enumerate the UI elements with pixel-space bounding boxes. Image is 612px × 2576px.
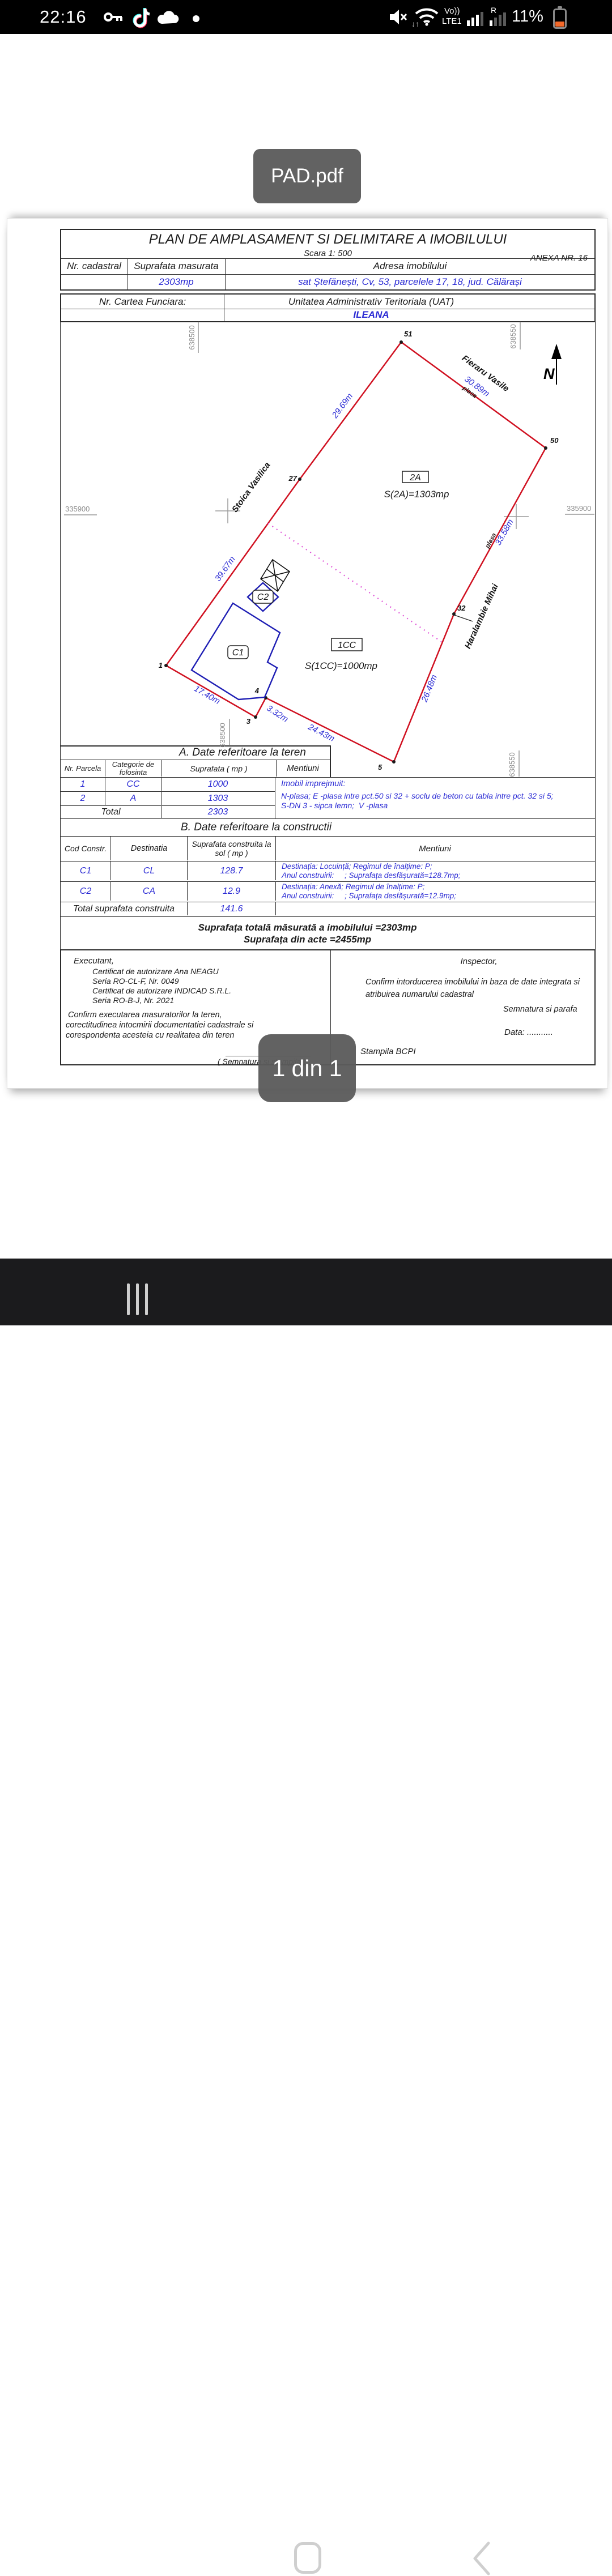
parcel-2a-code: 2A	[409, 473, 421, 483]
b-r1-men: Destinația: Locuință; Regimul de înalțim…	[275, 861, 594, 880]
table-b-total-row: Total suprafata construita 141.6	[60, 902, 596, 917]
a-r1-cat: CC	[105, 778, 161, 791]
a-men-line2: N-plasa; E -plasa intre pct.50 si 32 + s…	[281, 791, 554, 800]
grid-label-top-left: 638500	[188, 325, 196, 349]
cloud-icon	[156, 10, 181, 25]
b-r1-dest: CL	[110, 861, 187, 880]
val-nr-cadastral	[61, 274, 127, 289]
dim-39-67: 39.67m	[213, 555, 237, 583]
val-adresa: sat Ștefănești, Cv, 53, parcelele 17, 18…	[225, 274, 594, 289]
b-r2-dest: CA	[110, 882, 187, 901]
executant-cert-4: Seria RO-B-J, Nr. 2021	[92, 996, 174, 1005]
parcel-boundary	[166, 342, 546, 762]
signal-bars-icon	[467, 10, 486, 26]
grid-label-bottom-left: 638500	[218, 723, 227, 747]
table-a-total-row: Total 2303	[60, 806, 275, 819]
a-total-value: 2303	[161, 806, 274, 818]
executant-cert-1: Certificat de autorizare Ana NEAGU	[92, 967, 219, 976]
val-uat: ILEANA	[224, 309, 518, 321]
b-r1-men-1: Destinația: Locuință; Regimul de înalțim…	[282, 862, 432, 871]
dim-3-32: 3.32m	[265, 703, 290, 724]
a-hdr-cat: Categorie de folosinta	[105, 760, 161, 777]
inspector-label: Inspector,	[405, 956, 552, 966]
home-button[interactable]	[294, 2542, 321, 2574]
hdr-nr-cadastral: Nr. cadastral	[61, 258, 127, 274]
a-r2-sup: 1303	[161, 792, 274, 805]
total-measured: Suprafața totală măsurată a imobilului =…	[7, 922, 607, 933]
inspector-date: Data: ...........	[504, 1027, 553, 1037]
battery-percent: 11%	[512, 7, 543, 26]
table-a-row-2: 2 A 1303	[60, 792, 275, 806]
section-a-title: A. Date referitoare la teren	[115, 747, 370, 759]
a-r1-sup: 1000	[161, 778, 274, 791]
a-r2-nr: 2	[61, 792, 105, 805]
inspector-confirm-2: atribuirea numarului cadastral	[365, 990, 474, 999]
b-hdr-cod: Cod Constr.	[61, 837, 110, 860]
shed-x-structure	[261, 560, 290, 591]
cf-table: Nr. Cartea Funciara: Unitatea Administra…	[60, 293, 596, 322]
a-r2-cat: A	[105, 792, 161, 805]
a-total-label: Total	[61, 806, 161, 818]
inspector-confirm-1: Confirm intorducerea imobilului in baza …	[365, 978, 580, 987]
site-plan-map: 638500 638550 638500 638550 335900 33590…	[60, 322, 596, 778]
table-b-row-c2: C2 CA 12.9 Destinația: Anexă; Regimul de…	[60, 882, 596, 902]
a-men-line3: S-DN 3 - sipca lemn; V -plasa	[281, 801, 388, 810]
volte-label: Vo))	[444, 7, 460, 16]
inspector-stamp: Stampila BCPI	[360, 1047, 416, 1056]
b-r2-men-1: Destinația: Anexă; Regimul de înalțime: …	[282, 882, 424, 891]
north-letter: N	[543, 365, 555, 382]
clock: 22:16	[40, 7, 87, 27]
executant-confirm-3: corespondenta acesteia cu realitatea din…	[66, 1031, 234, 1040]
signal-bars2-icon	[490, 12, 509, 26]
a-hdr-sup: Suprafata ( mp )	[161, 760, 276, 777]
executant-cert-3: Certificat de autorizare INDICAD S.R.L.	[92, 986, 231, 995]
b-hdr-men: Mentiuni	[275, 837, 594, 860]
b-r1-men-2: Anul construirii: ; Suprafața desfășurat…	[282, 871, 461, 880]
a-men-line1: Imobil imprejmuit:	[281, 779, 346, 788]
b-r2-sup: 12.9	[187, 882, 275, 901]
executant-label: Executant,	[74, 956, 114, 966]
b-r1-cod: C1	[61, 861, 110, 880]
wifi-traffic-arrows-icon: ↓↑	[411, 19, 419, 28]
parcel-1cc-area: S(1CC)=1000mp	[305, 660, 377, 671]
recents-button[interactable]	[119, 1276, 159, 1315]
dim-29-69: 29.69m	[330, 391, 355, 420]
file-name: PAD.pdf	[271, 165, 343, 187]
key-icon	[104, 10, 123, 24]
owner-haralambie: Haralambie Mihai	[463, 582, 500, 650]
point-4: 4	[254, 686, 260, 695]
pdf-page[interactable]: PLAN DE AMPLASAMENT SI DELIMITARE A IMOB…	[7, 218, 608, 1089]
navigation-bar	[0, 1259, 612, 1325]
owner-stoica: Stoica Vasilica	[230, 460, 273, 514]
point-27: 27	[288, 474, 297, 483]
parcel-2a-area: S(2A)=1303mp	[384, 489, 449, 500]
point-32: 32	[457, 604, 466, 612]
dim-33-58: 33.58m	[493, 518, 515, 547]
file-name-toast: PAD.pdf	[253, 149, 361, 203]
section-b-title: B. Date referitoare la constructii	[181, 821, 331, 834]
grid-label-top-right: 638550	[509, 324, 517, 348]
point-51: 51	[404, 330, 412, 338]
a-hdr-nr: Nr. Parcela	[61, 760, 105, 777]
inspector-signature-label: Semnatura si parafa	[503, 1005, 577, 1014]
b-total-label: Total suprafata construita	[61, 902, 187, 915]
table-b-header: Cod Constr. Destinatia Suprafata constru…	[60, 836, 596, 861]
hdr-suprafata-masurata: Suprafata masurata	[127, 258, 225, 274]
point-1: 1	[159, 661, 163, 669]
b-r2-men-2: Anul construirii: ; Suprafața desfășurat…	[282, 892, 456, 900]
grid-label-mid-right: 335900	[567, 504, 591, 513]
b-r2-cod: C2	[61, 882, 110, 901]
point-50: 50	[550, 436, 559, 445]
b-total-value: 141.6	[187, 902, 275, 915]
table-a-mentiuni: Imobil imprejmuit: N-plasa; E -plasa int…	[275, 778, 596, 819]
table-a-row-1: 1 CC 1000	[60, 778, 275, 792]
lte-label: LTE1	[442, 17, 462, 26]
label-c1: C1	[232, 648, 244, 658]
executant-confirm-1: Confirm executarea masuratorilor la tere…	[68, 1010, 222, 1020]
point-3: 3	[246, 717, 251, 726]
val-suprafata-masurata: 2303mp	[127, 274, 225, 289]
battery-icon	[553, 8, 567, 29]
recents-icon	[127, 1283, 130, 1315]
b-hdr-sup: Suprafata construita la sol ( mp )	[187, 837, 275, 860]
label-c2: C2	[257, 592, 269, 602]
parcel-1cc-code: 1CC	[338, 641, 356, 650]
notification-dot-icon	[193, 15, 199, 22]
table-b-row-c1: C1 CL 128.7 Destinația: Locuință; Regimu…	[60, 861, 596, 882]
hdr-cartea-funciara: Nr. Cartea Funciara:	[61, 295, 224, 309]
mute-icon	[389, 8, 408, 25]
doc-title: PLAN DE AMPLASAMENT SI DELIMITARE A IMOB…	[61, 231, 594, 248]
hdr-adresa: Adresa imobilului	[225, 258, 594, 274]
grid-label-mid-left: 335900	[65, 505, 90, 513]
page-indicator: 1 din 1	[272, 1055, 342, 1082]
back-button[interactable]	[468, 2541, 496, 2576]
total-acts: Suprafața din acte =2455mp	[7, 934, 607, 945]
hdr-uat: Unitatea Administrativ Teritoriala (UAT)	[224, 295, 518, 309]
tiktok-icon	[129, 6, 152, 29]
north-arrow-icon: N	[543, 344, 562, 385]
map-border	[60, 322, 596, 778]
dim-26-48: 26.48m	[419, 673, 439, 704]
table-a-header: Nr. Parcela Categorie de folosinta Supra…	[60, 760, 330, 778]
b-r2-men: Destinația: Anexă; Regimul de înalțime: …	[275, 882, 594, 901]
parcel-divider-dotted	[268, 523, 441, 642]
a-r1-nr: 1	[61, 778, 105, 791]
page-indicator-toast: 1 din 1	[258, 1034, 356, 1102]
b-r1-sup: 128.7	[187, 861, 275, 880]
executant-confirm-2: corectitudinea intocmirii documentatiei …	[66, 1021, 253, 1030]
executant-cert-2: Seria RO-CL-F, Nr. 0049	[92, 976, 179, 986]
dim-17-40: 17.40m	[192, 684, 222, 706]
a-hdr-men: Mentiuni	[276, 760, 329, 777]
b-hdr-dest: Destinatia	[110, 837, 187, 860]
status-bar: 22:16 ↓↑ Vo)) LTE1 R	[0, 0, 612, 34]
title-table: PLAN DE AMPLASAMENT SI DELIMITARE A IMOB…	[60, 229, 596, 291]
